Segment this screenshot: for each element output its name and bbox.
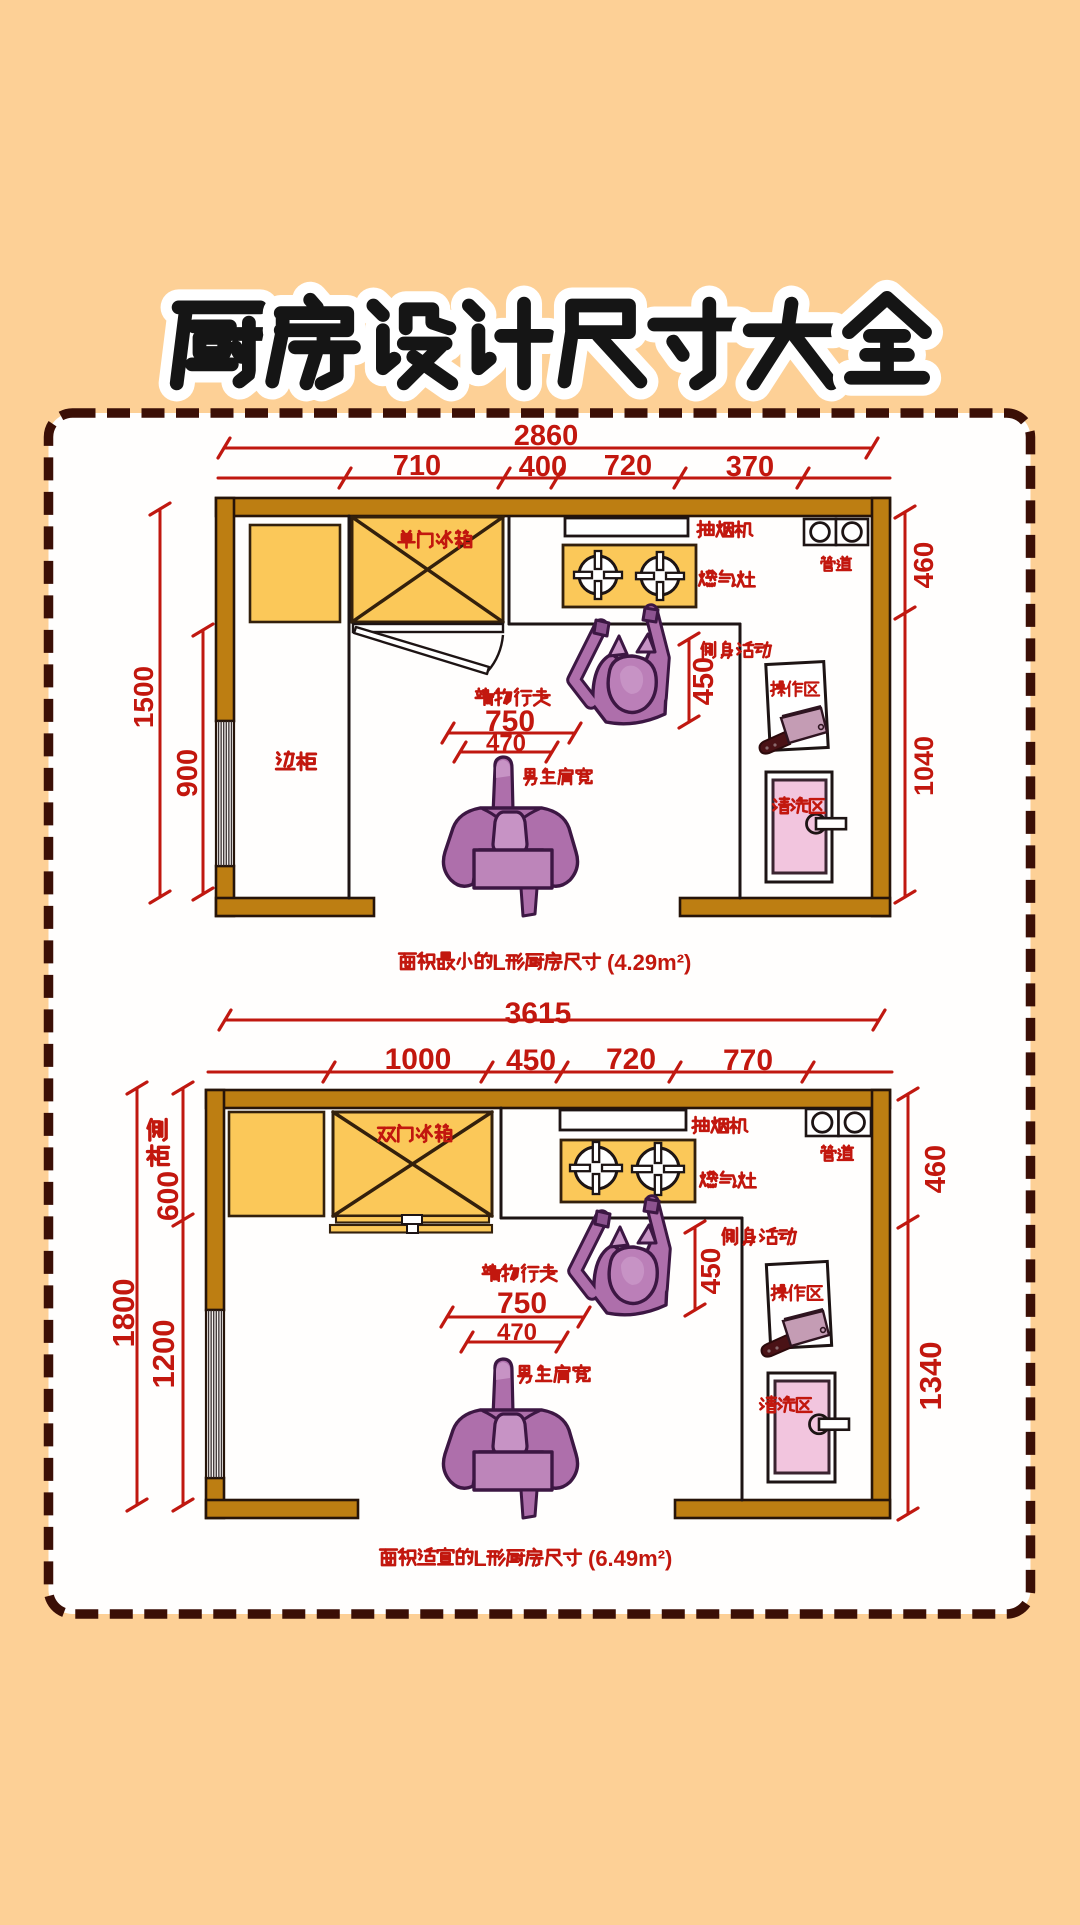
svg-text:3615: 3615: [505, 997, 572, 1030]
svg-text:1800: 1800: [106, 1279, 141, 1348]
svg-text:L: L: [492, 950, 505, 975]
svg-text:1500: 1500: [128, 666, 159, 728]
svg-text:(4.29m²): (4.29m²): [607, 950, 691, 975]
svg-text:770: 770: [723, 1044, 773, 1077]
svg-text:1340: 1340: [913, 1342, 948, 1411]
svg-text:370: 370: [726, 451, 774, 483]
svg-text:710: 710: [393, 450, 441, 482]
svg-text:1200: 1200: [146, 1320, 181, 1389]
svg-text:900: 900: [172, 749, 204, 797]
svg-text:750: 750: [497, 1287, 547, 1320]
svg-text:720: 720: [606, 1043, 656, 1076]
svg-text:1040: 1040: [909, 736, 939, 796]
svg-text:600: 600: [152, 1171, 185, 1221]
svg-text:400: 400: [519, 451, 567, 483]
svg-text:(6.49m²): (6.49m²): [588, 1546, 672, 1571]
svg-text:460: 460: [908, 542, 939, 589]
svg-text:L: L: [473, 1546, 486, 1571]
svg-text:1000: 1000: [385, 1043, 452, 1076]
svg-text:460: 460: [920, 1145, 952, 1193]
svg-text:2860: 2860: [514, 420, 579, 452]
svg-text:450: 450: [688, 657, 720, 705]
svg-text:450: 450: [506, 1044, 556, 1077]
svg-text:450: 450: [695, 1248, 726, 1295]
svg-text:720: 720: [604, 450, 652, 482]
